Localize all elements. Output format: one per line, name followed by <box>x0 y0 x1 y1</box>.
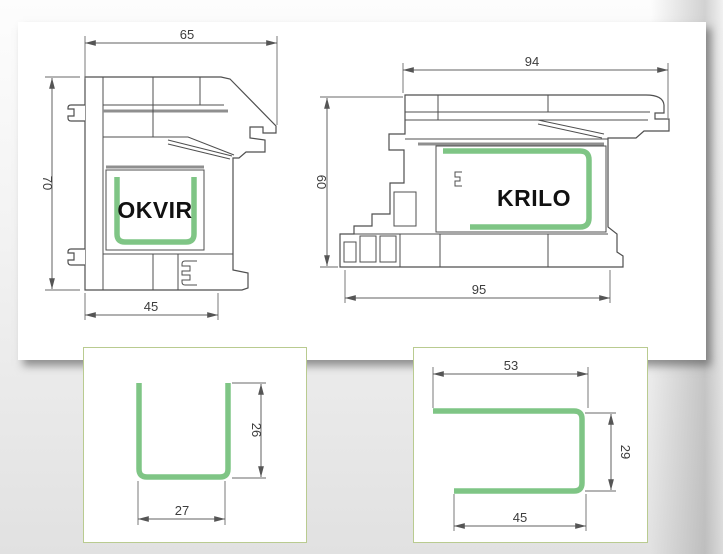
dim-u-channel-height: 26 <box>249 423 264 437</box>
okvir-left-clip-bottom <box>68 249 85 265</box>
c-channel-detail-box: 53 29 45 <box>413 347 648 543</box>
dim-c-channel-bottom-width: 45 <box>513 510 527 525</box>
okvir-left-clip-top <box>68 105 85 121</box>
profiles-drawing: OKVIR 65 70 45 <box>18 22 706 360</box>
dim-c-channel-height: 29 <box>618 445 633 459</box>
dim-okvir-bottom-width: 45 <box>144 299 158 314</box>
dim-c-channel-top-width: 53 <box>504 358 518 373</box>
page-background: OKVIR 65 70 45 <box>0 0 723 554</box>
dim-u-channel-width: 27 <box>175 503 189 518</box>
u-channel-drawing: 26 27 <box>84 348 305 541</box>
okvir-profile-drawing: OKVIR 65 70 45 <box>40 27 277 320</box>
dim-krilo-height: 60 <box>314 175 329 189</box>
krilo-label: KRILO <box>497 185 571 211</box>
c-channel-drawing: 53 29 45 <box>414 348 646 541</box>
dim-krilo-top-width: 94 <box>525 54 539 69</box>
drawing-sheet: OKVIR 65 70 45 <box>18 22 706 360</box>
u-channel-detail-box: 26 27 <box>83 347 307 543</box>
u-channel-shape <box>139 383 228 477</box>
dim-okvir-top-width: 65 <box>180 27 194 42</box>
krilo-profile-drawing: KRILO 94 60 95 <box>314 54 669 303</box>
dim-okvir-height: 70 <box>40 176 55 190</box>
okvir-label: OKVIR <box>117 197 192 223</box>
c-channel-shape <box>433 411 582 491</box>
dim-krilo-bottom-width: 95 <box>472 282 486 297</box>
